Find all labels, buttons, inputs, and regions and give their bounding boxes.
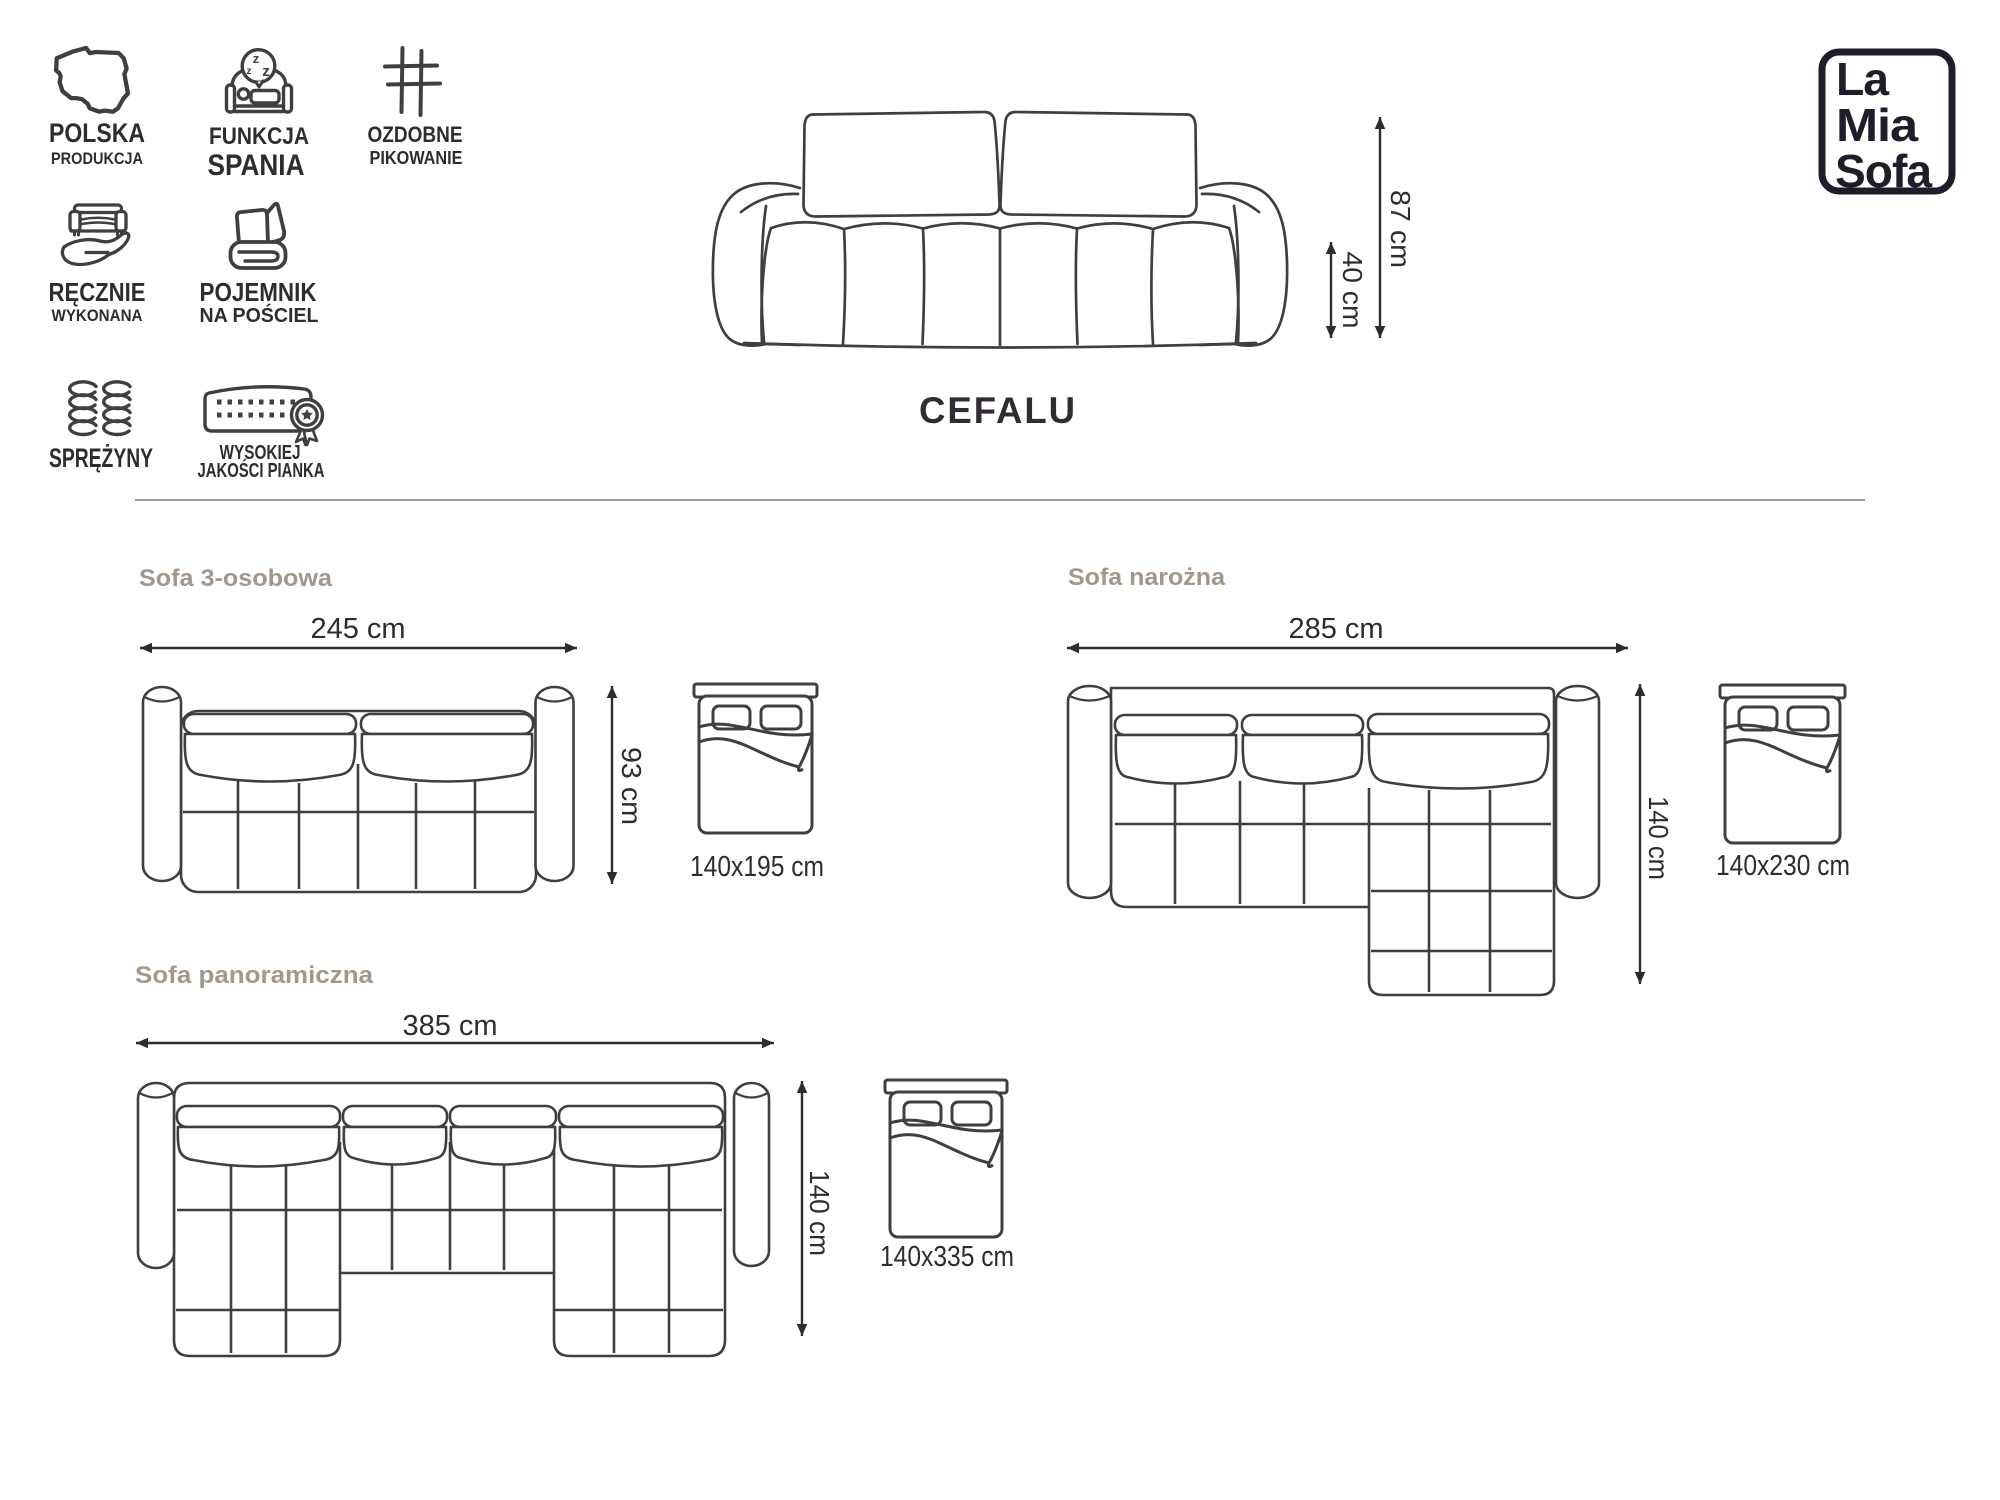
svg-text:140x195 cm: 140x195 cm bbox=[690, 851, 824, 883]
svg-text:CEFALU: CEFALU bbox=[919, 390, 1077, 431]
svg-text:z: z bbox=[253, 51, 260, 66]
svg-text:PIKOWANIE: PIKOWANIE bbox=[370, 147, 463, 168]
svg-text:245 cm: 245 cm bbox=[310, 613, 405, 645]
svg-text:JAKOŚCI PIANKA: JAKOŚCI PIANKA bbox=[198, 458, 325, 482]
svg-text:385 cm: 385 cm bbox=[402, 1010, 497, 1042]
svg-text:Sofa panoramiczna: Sofa panoramiczna bbox=[135, 962, 373, 989]
svg-text:SPRĘŻYNY: SPRĘŻYNY bbox=[49, 443, 153, 473]
svg-text:140x335 cm: 140x335 cm bbox=[880, 1241, 1014, 1273]
svg-text:140 cm: 140 cm bbox=[1643, 796, 1674, 880]
svg-text:z: z bbox=[247, 66, 252, 77]
svg-text:OZDOBNE: OZDOBNE bbox=[368, 122, 463, 147]
svg-text:40 cm: 40 cm bbox=[1337, 252, 1368, 329]
svg-text:PRODUKCJA: PRODUKCJA bbox=[51, 150, 143, 168]
svg-text:SPANIA: SPANIA bbox=[208, 149, 305, 182]
svg-text:RĘCZNIE: RĘCZNIE bbox=[49, 277, 146, 307]
svg-text:285 cm: 285 cm bbox=[1288, 613, 1383, 645]
svg-text:POLSKA: POLSKA bbox=[49, 118, 145, 148]
svg-text:140 cm: 140 cm bbox=[804, 1170, 835, 1256]
svg-text:Sofa: Sofa bbox=[1835, 145, 1932, 197]
svg-text:93 cm: 93 cm bbox=[616, 747, 647, 825]
svg-text:z: z bbox=[262, 63, 270, 80]
svg-text:NA POŚCIEL: NA POŚCIEL bbox=[200, 303, 319, 327]
svg-text:Mia: Mia bbox=[1836, 99, 1919, 151]
svg-text:FUNKCJA: FUNKCJA bbox=[209, 123, 309, 150]
svg-text:Sofa narożna: Sofa narożna bbox=[1068, 564, 1225, 591]
svg-text:WYKONANA: WYKONANA bbox=[52, 306, 143, 325]
svg-text:POJEMNIK: POJEMNIK bbox=[200, 277, 317, 307]
svg-text:87 cm: 87 cm bbox=[1385, 190, 1416, 268]
svg-text:Sofa 3-osobowa: Sofa 3-osobowa bbox=[139, 565, 332, 592]
svg-text:140x230 cm: 140x230 cm bbox=[1716, 850, 1850, 882]
svg-text:La: La bbox=[1836, 53, 1889, 105]
